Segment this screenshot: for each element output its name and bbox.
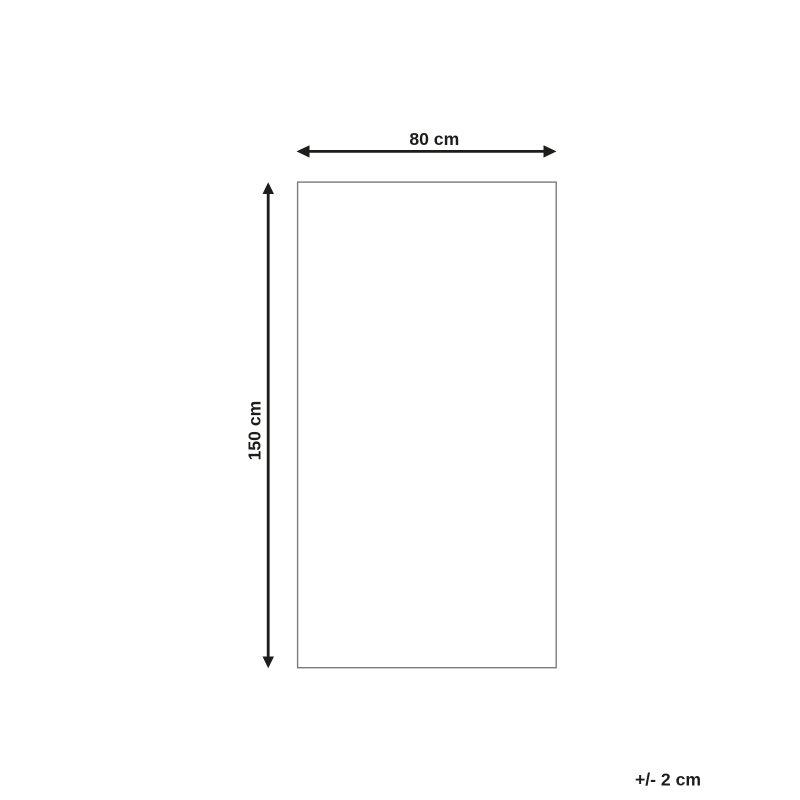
svg-text:150 cm: 150 cm <box>244 401 264 461</box>
svg-text:+/- 2 cm: +/- 2 cm <box>635 769 701 789</box>
svg-text:80 cm: 80 cm <box>409 129 459 149</box>
